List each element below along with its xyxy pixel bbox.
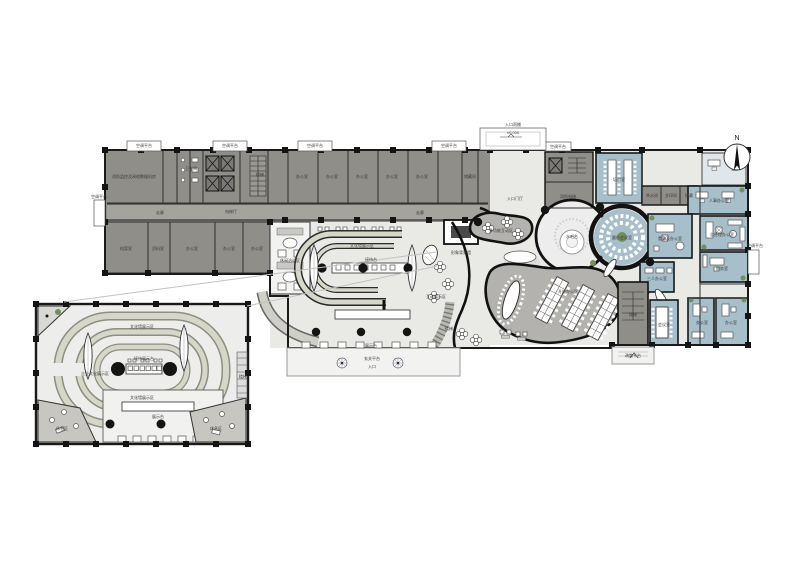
oval-table [504, 251, 536, 263]
plan-label: 总经理办公室 [710, 231, 734, 237]
plan-label: 办公室 [356, 173, 368, 179]
plan-label: 休息区 [56, 425, 68, 431]
plan-label: 办公室 [416, 173, 428, 179]
plan-label: 形象背景墙 [451, 249, 471, 255]
plan-label: 入口雨棚 [505, 121, 521, 127]
floor-plan-page: N 空调平台空调平台空调平台空调平台空调平台±0.000入口雨棚空调平台空调平台… [0, 0, 800, 566]
plan-label: 储藏 [685, 192, 693, 198]
plan-label: 消防监控及网络数据机房 [112, 173, 156, 179]
plan-label: 互动展示区 [426, 293, 446, 299]
plan-label: 储藏间 [464, 173, 476, 179]
plan-label: 茶水间 [646, 192, 658, 198]
plan-label: 办公室 [223, 245, 235, 251]
plan-label: 疏散平台 [625, 352, 641, 358]
plan-label: 空调平台 [550, 143, 566, 149]
plan-label: 楼梯 [445, 325, 453, 331]
plan-label: 休息区 [210, 425, 222, 431]
plan-label: 空调平台 [222, 142, 238, 148]
plan-label: 人事办公室 [709, 197, 729, 203]
open-office-blob [486, 264, 622, 343]
plan-label: 楼梯 [629, 311, 637, 317]
plan-label: 文化墙展示区 [350, 242, 374, 248]
plan-label: 办公室 [386, 173, 398, 179]
plan-label: 休闲洽谈区 [280, 257, 300, 263]
plan-label: 空调平台 [91, 193, 107, 199]
plan-label: 空调平台 [441, 142, 457, 148]
plan-label: 办公室 [725, 319, 737, 325]
plan-label: 空调平台 [136, 142, 152, 148]
plan-label: 办公室 [696, 319, 708, 325]
plan-label: 董事长办公室 [658, 235, 682, 241]
plan-label: 培训室 [613, 176, 625, 182]
plan-label: 圆形会议室 [612, 234, 632, 240]
display-wall [335, 310, 410, 319]
plan-label: 接待台 [365, 256, 377, 262]
north-label: N [734, 135, 739, 142]
plan-label: 文化墙展示区 [130, 394, 154, 400]
plan-label: 多功能互动区 [489, 227, 513, 233]
plan-label: 资料室 [152, 245, 164, 251]
plan-label: 三人办公室 [647, 275, 667, 281]
plan-label: 入口 [368, 364, 376, 369]
plan-label: 展示台 [152, 413, 164, 419]
plan-label: 办公室 [326, 173, 338, 179]
spiral-opening [50, 363, 84, 376]
plan-label: 卫生间 [185, 165, 197, 171]
plan-label: ±0.000 [507, 130, 520, 135]
plan-label: 玄关平台 [364, 355, 380, 361]
plan-label: 接待展示台 [134, 355, 154, 361]
plan-label: 楼梯 [256, 171, 264, 177]
plan-label: 档案室 [120, 245, 132, 251]
plan-label: 楼梯 [239, 373, 247, 379]
north-arrow: N [724, 135, 750, 170]
plan-label: 企业文化展示区 [81, 370, 109, 376]
plan-label: 文化墙展示区 [130, 323, 154, 329]
plan-label: 空调平台 [307, 142, 323, 148]
plan-label: 入口门厅 [507, 195, 523, 201]
plan-label: 水吧台 [566, 233, 578, 239]
plan-label: 展示台 [365, 342, 377, 348]
plan-label: 办公室 [186, 245, 198, 251]
plan-label: 会议室 [658, 321, 670, 327]
plan-label: 财务室 [716, 265, 728, 271]
plan-label: 开放办公区 [558, 288, 578, 294]
plan-label: 消防电梯 [560, 193, 576, 199]
floor-plan-drawing: N 空调平台空调平台空调平台空调平台空调平台±0.000入口雨棚空调平台空调平台… [0, 0, 800, 566]
plan-label: 空调平台 [747, 242, 763, 248]
plan-label: 走廊 [156, 209, 164, 215]
plan-label: 文印间 [665, 192, 677, 198]
plan-label: 办公室 [251, 245, 263, 251]
plan-label: 电梯厅 [225, 208, 237, 214]
plan-label: 办公室 [296, 173, 308, 179]
plan-label: 走廊 [416, 209, 424, 215]
